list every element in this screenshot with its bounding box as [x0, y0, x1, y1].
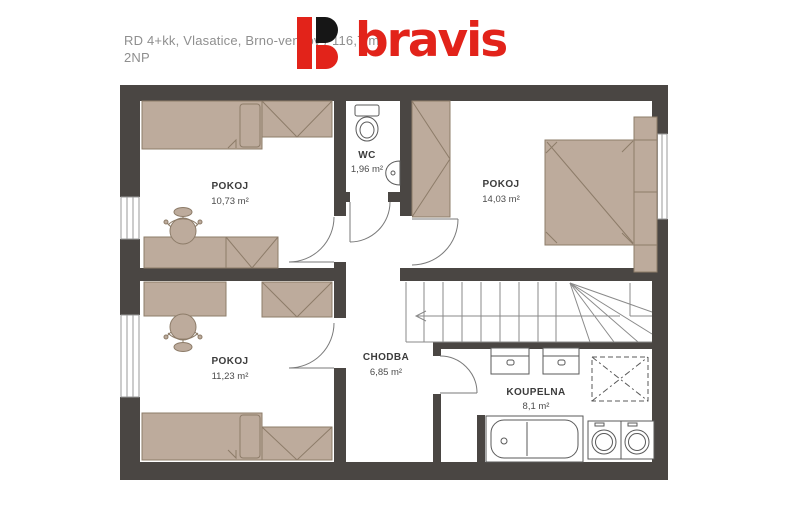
single-bed-top	[142, 101, 262, 149]
room-name-koupelna: KOUPELNA	[506, 387, 565, 398]
toilet-icon	[355, 105, 379, 141]
washing-machine-1	[588, 421, 621, 459]
bathroom-sink-1	[491, 348, 529, 374]
reserved-area-dashed	[592, 357, 648, 401]
staircase	[406, 282, 652, 342]
window-left-bottom	[121, 315, 139, 397]
desk-chair-bottom-room	[164, 314, 202, 352]
floor-plan: POKOJ 10,73 m² WC 1,96 m² POKOJ 14,03 m²…	[0, 0, 800, 530]
bathtub-icon	[486, 416, 583, 462]
door-pokoj-top-left	[289, 217, 334, 262]
bravis-logo-text: bravis	[355, 13, 506, 69]
room-area-pokoj-1: 10,73 m²	[211, 196, 249, 207]
room-name-wc: WC	[358, 150, 375, 161]
window-left-top	[121, 197, 139, 239]
wardrobe-bottom-room-bottom	[262, 427, 332, 460]
wardrobe-top-left-room	[262, 101, 332, 137]
bravis-logo-icon	[297, 13, 351, 73]
room-name-pokoj-3: POKOJ	[211, 356, 248, 367]
room-name-chodba: CHODBA	[363, 352, 409, 363]
desk-bottom-room	[144, 282, 226, 316]
single-bed-bottom	[142, 413, 262, 460]
door-pokoj-bottom-left	[289, 323, 334, 368]
room-name-pokoj-2: POKOJ	[482, 179, 519, 190]
room-name-pokoj-1: POKOJ	[211, 181, 248, 192]
room-area-pokoj-2: 14,03 m²	[482, 194, 520, 205]
room-area-wc: 1,96 m²	[351, 164, 383, 175]
room-area-pokoj-3: 11,23 m²	[212, 371, 249, 382]
room-area-koupelna: 8,1 m²	[523, 401, 550, 412]
door-pokoj-right	[412, 219, 458, 265]
door-wc	[350, 202, 390, 242]
wardrobe-bottom-room-top	[262, 282, 332, 317]
cabinet-top-room	[226, 237, 278, 268]
double-bed	[545, 117, 657, 272]
tall-wardrobe-right-room	[412, 101, 450, 217]
door-koupelna	[440, 356, 477, 393]
washing-machine-2	[621, 421, 654, 459]
bathroom-sink-2	[543, 348, 579, 374]
stairs-direction-arrow	[416, 311, 620, 321]
wall-top	[120, 85, 668, 101]
wall-bottom	[120, 462, 668, 480]
wc-sink-icon	[386, 161, 400, 185]
bravis-logo: bravis	[297, 13, 506, 73]
room-area-chodba: 6,85 m²	[370, 367, 402, 378]
